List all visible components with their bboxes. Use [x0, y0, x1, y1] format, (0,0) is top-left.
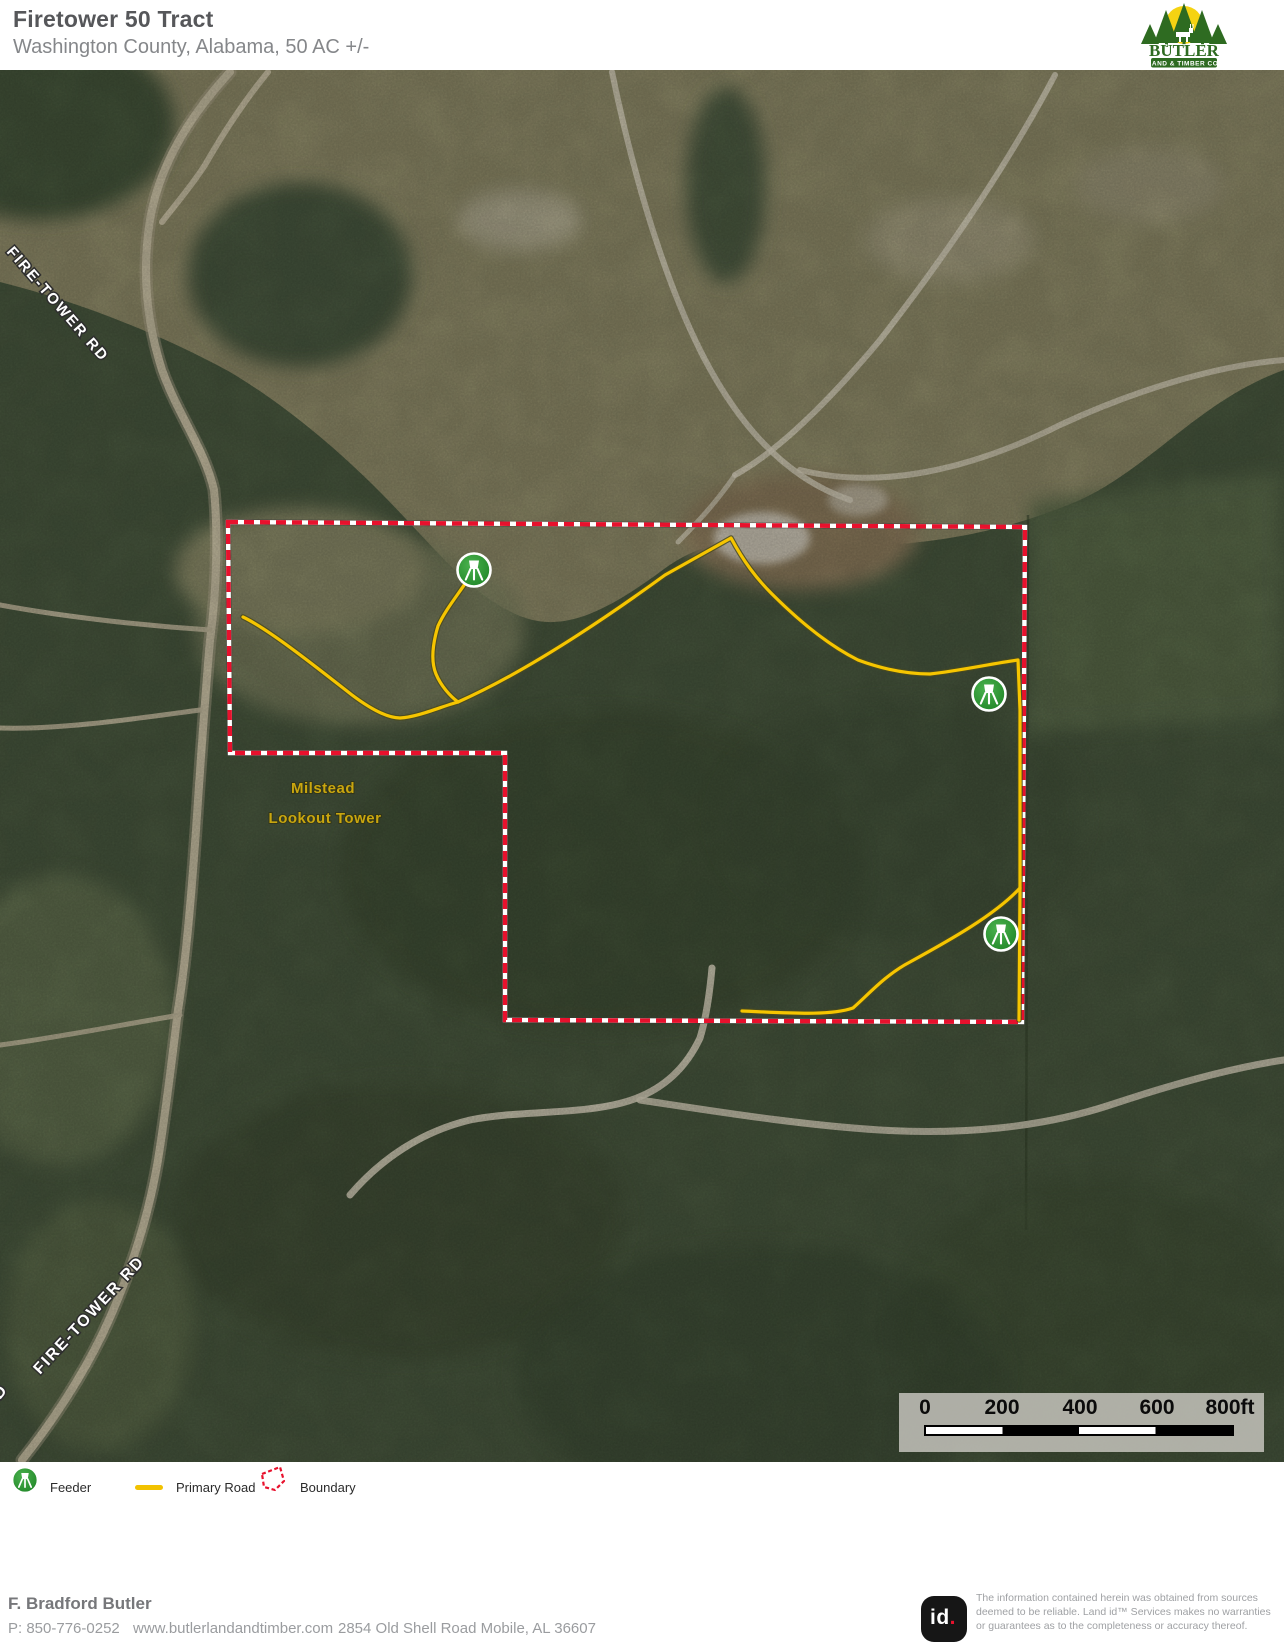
website-link[interactable]: www.butlerlandandtimber.com: [133, 1620, 333, 1637]
map-image: FIRE-TOWER RD FIRE-TOWER RD D Milstead L…: [0, 70, 1284, 1462]
terrain-texture-fine: [0, 70, 1284, 1462]
tower-label-line2: Lookout Tower: [269, 810, 382, 827]
legend-primary-road-swatch: [135, 1485, 163, 1490]
agent-phone: P: 850-776-0252: [8, 1620, 120, 1637]
legend: Feeder Primary Road Boundary: [0, 1462, 1284, 1545]
scale-tick-200: 200: [984, 1396, 1019, 1420]
legend-label-feeder: Feeder: [50, 1480, 91, 1495]
header: Firetower 50 Tract Washington County, Al…: [0, 0, 1284, 70]
logo-tagline: LAND & TIMBER CO.: [1147, 61, 1220, 68]
land-id-logo-text: id: [930, 1606, 950, 1629]
land-id-logo: id.: [921, 1596, 967, 1642]
office-address: 2854 Old Shell Road Mobile, AL 36607: [338, 1620, 596, 1637]
page-subtitle: Washington County, Alabama, 50 AC +/-: [13, 36, 369, 59]
scale-tick-600: 600: [1139, 1396, 1174, 1420]
legend-boundary-icon: [258, 1464, 288, 1499]
company-logo: BUTLER LAND & TIMBER CO.: [1140, 2, 1227, 68]
scale-tick-0: 0: [919, 1396, 931, 1420]
footer: F. Bradford Butler P: 850-776-0252 www.b…: [0, 1545, 1284, 1650]
legend-label-primary-road: Primary Road: [176, 1480, 255, 1495]
logo-name: BUTLER: [1149, 41, 1220, 60]
feeder-marker-2: [973, 678, 1006, 711]
scale-bar-segments: [924, 1425, 1234, 1436]
feeder-marker-3: [985, 918, 1018, 951]
scale-bar: 0 200 400 600 800ft: [899, 1393, 1264, 1452]
flyer-page: Firetower 50 Tract Washington County, Al…: [0, 0, 1284, 1650]
feeder-marker-1: [458, 554, 491, 587]
disclaimer-text: The information contained herein was obt…: [976, 1592, 1282, 1634]
legend-label-boundary: Boundary: [300, 1480, 356, 1495]
land-id-logo-dot: .: [950, 1606, 956, 1629]
scale-tick-800: 800ft: [1205, 1396, 1254, 1420]
legend-feeder-icon: [10, 1465, 40, 1500]
tower-label-line1: Milstead: [291, 780, 355, 797]
agent-name: F. Bradford Butler: [8, 1594, 152, 1614]
scale-tick-400: 400: [1062, 1396, 1097, 1420]
page-title: Firetower 50 Tract: [13, 6, 213, 33]
